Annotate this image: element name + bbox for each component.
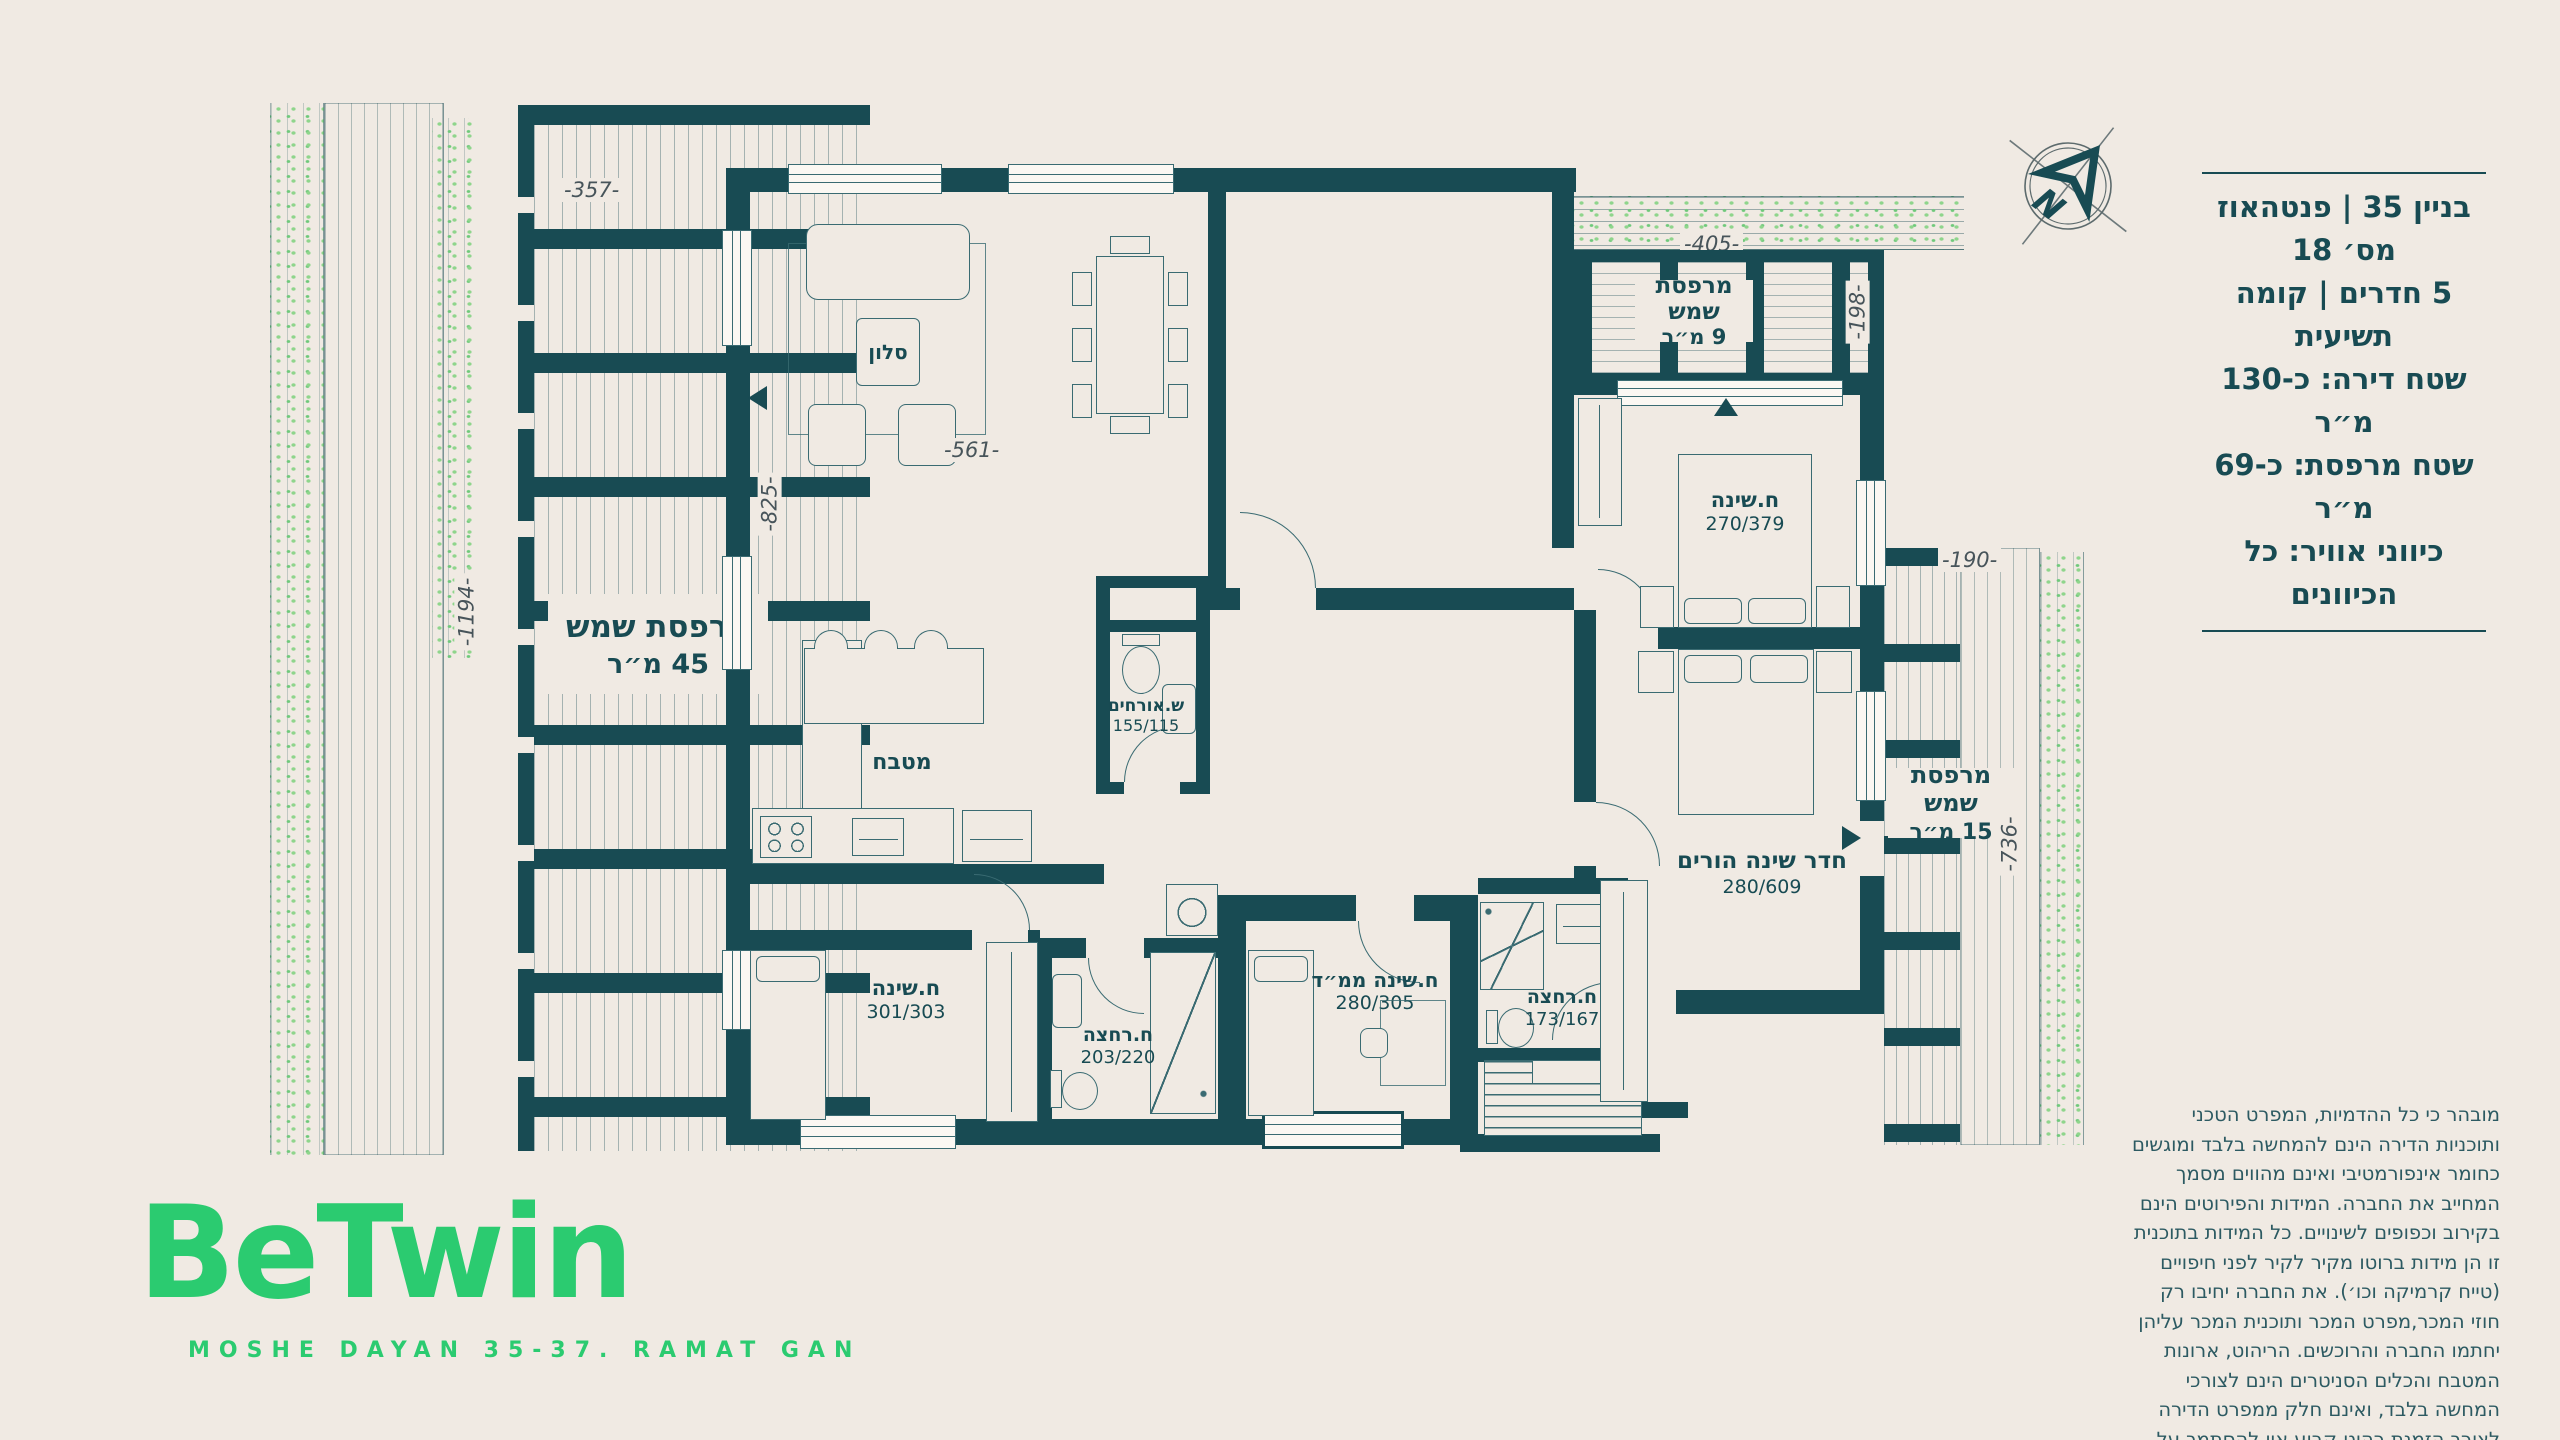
wall <box>1208 192 1226 588</box>
room-label-bedroom2: ח.שינה 301/303 <box>848 976 964 1024</box>
dimension-living-height: -825- <box>758 472 782 535</box>
nightstand <box>1640 586 1674 628</box>
mamad-label: ח.שינה ממ״ד <box>1310 968 1440 992</box>
bath1-label: ח.רחצה <box>1068 1024 1168 1047</box>
kitchen-sink <box>852 818 904 856</box>
balcony9-label: מרפסת שמש <box>1635 273 1753 325</box>
wall <box>956 1119 1238 1145</box>
wall <box>1552 192 1574 548</box>
wall <box>1096 576 1210 588</box>
info-line: בניין 35 | פנטהאוז מס׳ 18 <box>2196 186 2492 272</box>
dining-chair <box>1168 272 1188 306</box>
wall <box>1450 895 1478 1145</box>
window <box>788 164 942 194</box>
pillow <box>1748 598 1806 624</box>
window <box>800 1115 956 1149</box>
nightstand <box>1638 651 1674 693</box>
wall <box>1460 1134 1660 1152</box>
wall <box>1860 801 1884 821</box>
window <box>1856 480 1886 586</box>
slider-marker <box>1714 398 1738 416</box>
info-line: כיווני אוויר: כל הכיוונים <box>2196 530 2492 616</box>
pillow <box>1750 655 1808 683</box>
wall <box>1860 631 1884 691</box>
wall <box>1218 895 1246 1145</box>
wall <box>1316 588 1574 610</box>
wardrobe <box>986 942 1038 1122</box>
room-label-bedroom1: ח.שינה 270/379 <box>1690 486 1800 538</box>
fridge <box>962 810 1032 862</box>
room-label-kitchen: מטבח <box>852 750 952 776</box>
slider-marker <box>1842 826 1861 850</box>
balcony15-area: 15 מ״ר <box>1909 820 1992 845</box>
wall <box>726 930 972 950</box>
bath1-dims: 203/220 <box>1068 1047 1168 1069</box>
guest-wc-dims: 155/115 <box>1098 716 1194 735</box>
floor-plan-page: -1194- -357- מרפסת שמש 45 מ״ר -405- מרפס… <box>0 0 2560 1440</box>
bar-stool <box>914 630 948 649</box>
entry-door-arc <box>1240 512 1316 588</box>
wall <box>1414 895 1454 921</box>
wall <box>1676 990 1884 1014</box>
master-dims: 280/609 <box>1672 876 1852 899</box>
kitchen-island <box>804 648 984 724</box>
nightstand <box>1816 651 1852 693</box>
stove <box>760 816 812 858</box>
pillow <box>1684 655 1742 683</box>
balcony15-label: מרפסת שמש <box>1888 761 2014 817</box>
coffee-table: סלון <box>856 318 920 386</box>
wall <box>1180 782 1210 794</box>
balcony9-area: 9 מ״ר <box>1662 325 1727 349</box>
toilet <box>1062 1072 1098 1110</box>
wardrobe <box>1600 880 1648 1102</box>
armchair <box>808 404 866 466</box>
wall <box>726 864 1104 884</box>
dining-chair <box>1110 236 1150 254</box>
bathroom-sink <box>1052 974 1082 1028</box>
wall <box>1196 576 1210 794</box>
room-label-master: חדר שינה הורים 280/609 <box>1672 848 1852 898</box>
pillow <box>756 956 820 982</box>
dining-table <box>1096 256 1164 414</box>
window <box>722 556 752 670</box>
info-line: 5 חדרים | קומה תשיעית <box>2196 272 2492 358</box>
wall <box>726 192 750 230</box>
dimension-top-left: -357- <box>560 178 623 202</box>
dimension-balcony15-height: -736- <box>1998 812 2022 875</box>
room-label-balcony9: מרפסת שמש 9 מ״ר <box>1635 280 1753 342</box>
window <box>722 950 752 1030</box>
info-line: שטח דירה: כ-130 מ״ר <box>2196 358 2492 444</box>
toilet-tank <box>1050 1070 1062 1108</box>
brand-logo: BeTwin <box>138 1190 631 1318</box>
bedroom2-label: ח.שינה <box>848 976 964 1001</box>
balcony45-area: 45 מ״ר <box>607 649 709 680</box>
balcony45-columns <box>518 105 534 1151</box>
deck-strip-left <box>324 103 444 1155</box>
dining-chair <box>1072 384 1092 418</box>
room-label-balcony15: מרפסת שמש 15 מ״ר <box>1888 768 2014 838</box>
wall <box>726 1119 800 1145</box>
bath2-label: ח.רחצה <box>1510 986 1614 1009</box>
wall <box>1096 576 1110 794</box>
balcony15-pergola <box>1884 548 1960 1145</box>
compass: N <box>2000 118 2136 254</box>
room-label-bath1: ח.רחצה 203/220 <box>1068 1024 1168 1068</box>
wall <box>1574 250 1884 262</box>
wall <box>1404 1119 1454 1145</box>
guest-wc-label: ש.אורחים <box>1098 696 1194 716</box>
dining-chair <box>1072 272 1092 306</box>
desk <box>1380 1000 1446 1086</box>
dining-chair <box>1168 328 1188 362</box>
wall <box>1096 620 1210 632</box>
room-label-bath2: ח.רחצה 173/167 <box>1510 986 1614 1030</box>
wall <box>1860 373 1884 480</box>
dimension-balcony9-height: -198- <box>1846 280 1870 343</box>
window <box>722 230 752 346</box>
compass-line <box>2010 140 2127 231</box>
info-line: שטח מרפסת: כ-69 מ״ר <box>2196 444 2492 530</box>
toilet-tank <box>1486 1010 1498 1044</box>
info-panel: בניין 35 | פנטהאוז מס׳ 18 5 חדרים | קומה… <box>2196 172 2492 632</box>
wall <box>1860 586 1884 631</box>
door-arc <box>1088 958 1144 1014</box>
dining-chair <box>1168 384 1188 418</box>
sofa <box>806 224 970 300</box>
washing-machine <box>1166 884 1218 936</box>
nightstand <box>1816 586 1850 628</box>
wall <box>1246 1119 1262 1145</box>
divider <box>2202 630 2486 632</box>
dimension-living-width: -561- <box>940 438 1003 462</box>
compass-north-label: N <box>2025 180 2072 229</box>
window <box>1008 164 1174 194</box>
bedroom2-dims: 301/303 <box>848 1001 964 1024</box>
brand-address: MOSHE DAYAN 35-37. RAMAT GAN <box>188 1338 861 1363</box>
wall <box>1208 588 1240 610</box>
room-label-guest-wc: ש.אורחים 155/115 <box>1098 696 1194 736</box>
wall <box>1246 895 1356 921</box>
mamad-window <box>1262 1111 1404 1149</box>
toilet-tank <box>1122 634 1160 646</box>
dimension-left-height: -1194- <box>454 574 478 651</box>
wardrobe <box>1578 398 1622 526</box>
pillow <box>1254 956 1308 982</box>
disclaimer-text: מובהר כי כל ההדמיות, המפרט הטכני ותוכניו… <box>2126 1100 2500 1440</box>
dimension-balcony15-width: -190- <box>1938 548 2001 572</box>
bedroom1-dims: 270/379 <box>1690 513 1800 536</box>
pillow <box>1684 598 1742 624</box>
toilet <box>1122 646 1160 694</box>
wall <box>1574 610 1596 802</box>
bedroom1-label: ח.שינה <box>1690 488 1800 513</box>
dining-chair <box>1110 416 1150 434</box>
window <box>1856 691 1886 801</box>
slider-marker <box>748 386 767 410</box>
wall <box>726 670 750 950</box>
shower <box>1480 902 1544 990</box>
planter-top-right <box>1574 196 1964 250</box>
wall <box>1096 782 1124 794</box>
room-label-salon: סלון <box>868 340 907 364</box>
desk-chair <box>1360 1028 1388 1058</box>
dining-chair <box>1072 328 1092 362</box>
master-label: חדר שינה הורים <box>1672 848 1852 876</box>
wall <box>1658 627 1884 649</box>
door-arc <box>1596 802 1660 866</box>
wall <box>1868 250 1884 375</box>
wall <box>726 346 750 556</box>
bath2-dims: 173/167 <box>1510 1009 1614 1031</box>
garden-strip-right <box>2040 552 2084 1145</box>
garden-strip-left <box>270 103 324 1155</box>
